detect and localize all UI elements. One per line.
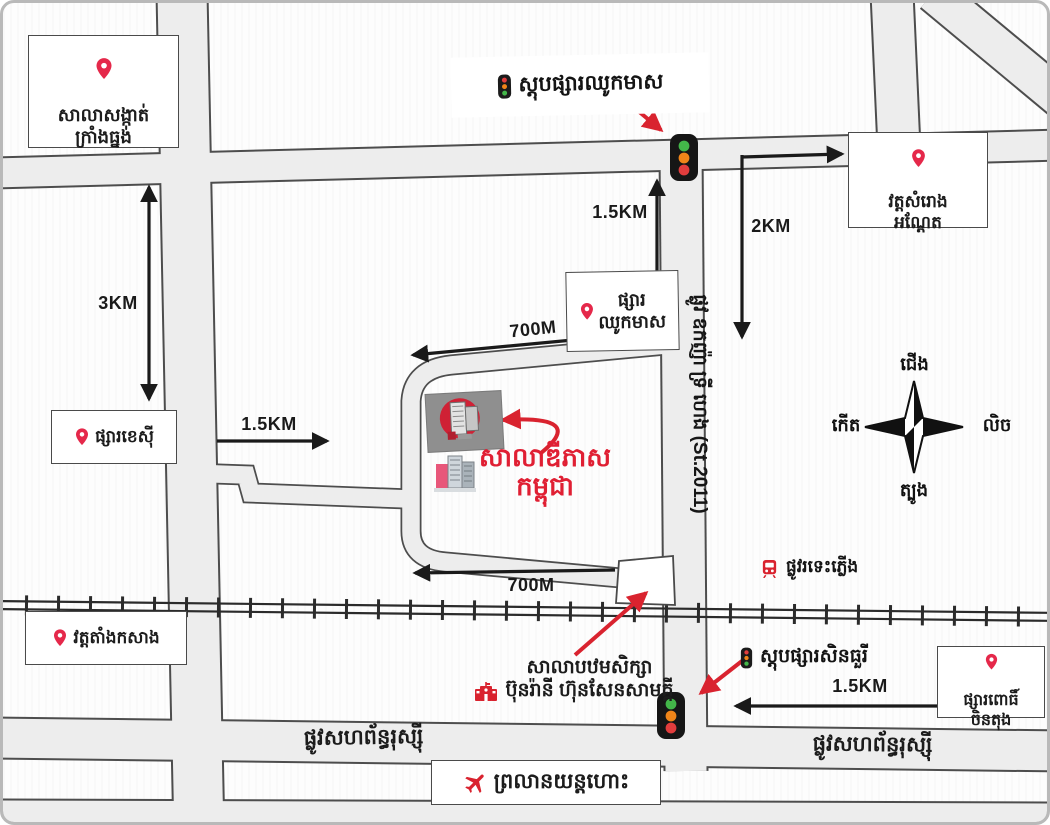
- label-stop-sinthury: ស្តុបផ្សារសិនធួរី: [740, 644, 868, 672]
- compass-south-label: ត្បូង: [880, 478, 948, 505]
- train-icon: [760, 559, 779, 578]
- distance-1-5km-top: 1.5KM: [582, 202, 658, 223]
- pin-and-label: ផ្សារ ឈូកមាស: [579, 278, 667, 345]
- landmark-label: វត្តតាំងកសាង: [73, 627, 159, 648]
- distance-700m-bottom: 700M: [495, 575, 567, 596]
- school-icon: [474, 659, 498, 725]
- label-text: សាលាបឋមសិក្សា ប៊ុនរ៉ានី ហ៊ុនសែនសាមគ្គី: [505, 656, 673, 702]
- label-railway-road: ផ្លូវរទេះភ្លើង: [760, 556, 858, 581]
- landmark-market-chhouk-meas: ផ្សារ ឈូកមាស: [565, 270, 679, 352]
- label-text: ស្តុបផ្សារសិនធួរី: [760, 644, 868, 672]
- compass-rose-icon: [865, 381, 963, 473]
- map-pin-icon: [52, 628, 68, 648]
- landmark-label: សាលាសង្កាត់ ក្រាំងធ្នង់: [58, 104, 149, 149]
- compass-west-label: លិច: [966, 413, 1028, 440]
- landmark-market-pochentong: ផ្សារពោធិ៍ ចិនតុង: [937, 646, 1045, 718]
- landmark-label: ផ្សារពោធិ៍ ចិនតុង: [963, 691, 1018, 731]
- map-pin-icon: [910, 127, 927, 191]
- distance-2km: 2KM: [741, 216, 801, 237]
- map-pin-icon: [74, 427, 90, 447]
- distance-1-5km-west: 1.5KM: [231, 414, 307, 435]
- compass-east-label: កើត: [815, 413, 877, 440]
- traffic-light-icon: [740, 646, 753, 670]
- map-pin-icon: [94, 35, 114, 104]
- landmark-label: ផ្សារខេស៊ី: [95, 426, 154, 447]
- map-pin-icon: [984, 633, 999, 691]
- label-text: ស្តុបផ្សារឈូកមាស: [518, 68, 664, 102]
- school-row: សាលាបឋមសិក្សា ប៊ុនរ៉ានី ហ៊ុនសែនសាមគ្គី: [474, 656, 673, 725]
- label-stop-chhouk-meas: ស្តុបផ្សារឈូកមាស: [450, 52, 709, 117]
- distance-1-5km-southeast: 1.5KM: [822, 676, 898, 697]
- street-name-russian-blvd-east: ផ្លូវសហព័ន្ធរុស្ស៊ី: [775, 731, 970, 758]
- landmark-wat-tang-kasang: វត្តតាំងកសាង: [25, 611, 187, 665]
- traffic-light-icon: [496, 73, 512, 99]
- traffic-light-north-icon: [670, 134, 698, 181]
- landmark-wat-samrong-andet: វត្តសំរោង អណ្ដែត: [848, 132, 988, 228]
- distance-3km: 3KM: [87, 293, 149, 314]
- landmark-commune-office: សាលាសង្កាត់ ក្រាំងធ្នង់: [28, 35, 179, 148]
- school-entrance-plot: [616, 556, 675, 605]
- airplane-icon: [463, 770, 489, 796]
- landmark-label: វត្តសំរោង អណ្ដែត: [888, 191, 947, 234]
- compass-north-label: ជើង: [882, 352, 947, 379]
- landmark-label: ព្រលានយន្តហោះ: [494, 769, 629, 795]
- street-name-st2011: ផ្លូវ ឧកញ៉ា ទ្រី ហេង (St.2011): [684, 264, 712, 544]
- label-primary-school: សាលាបឋមសិក្សា ប៊ុនរ៉ានី ហ៊ុនសែនសាមគ្គី: [433, 633, 715, 726]
- map-canvas: សាលាឌីភាស កម្ពុជា សាលាសង្កាត់ ក្រាំងធ្នង…: [0, 0, 1050, 825]
- map-pin-icon: [579, 279, 596, 344]
- label-text: ផ្លូវរទេះភ្លើង: [786, 556, 858, 581]
- landmark-airport: ព្រលានយន្តហោះ: [431, 760, 661, 805]
- landmark-market-kaysi: ផ្សារខេស៊ី: [51, 410, 177, 464]
- site-title: សាលាឌីភាស កម្ពុជា: [455, 443, 635, 501]
- landmark-label: ផ្សារ ឈូកមាស: [598, 288, 666, 334]
- street-name-russian-blvd-west: ផ្លូវសហព័ន្ធរុស្ស៊ី: [261, 723, 466, 752]
